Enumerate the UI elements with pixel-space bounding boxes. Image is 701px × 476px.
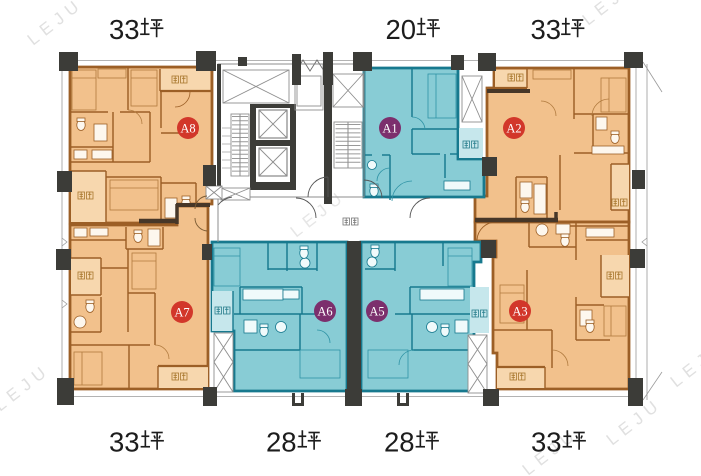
svg-text:33: 33	[109, 14, 140, 45]
svg-text:33: 33	[531, 427, 562, 458]
svg-text:A2: A2	[506, 122, 521, 136]
svg-text:A1: A1	[382, 122, 397, 136]
svg-text:28: 28	[266, 427, 297, 458]
svg-text:A6: A6	[317, 305, 332, 319]
svg-text:20: 20	[386, 14, 417, 45]
svg-text:A5: A5	[369, 305, 384, 319]
svg-text:A3: A3	[512, 305, 527, 319]
svg-text:A7: A7	[174, 306, 189, 320]
svg-text:A8: A8	[180, 122, 195, 136]
svg-text:33: 33	[531, 14, 562, 45]
svg-text:33: 33	[109, 427, 140, 458]
svg-text:28: 28	[384, 427, 415, 458]
